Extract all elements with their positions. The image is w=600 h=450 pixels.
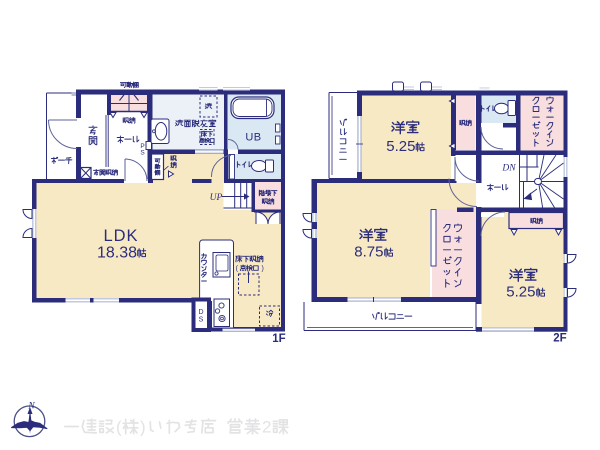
svg-text:): ) [140,417,146,436]
svg-text:5.25: 5.25 [506,284,535,301]
svg-text:UP: UP [210,193,223,203]
svg-text:UB: UB [245,132,261,144]
svg-text:LDK: LDK [103,227,138,245]
svg-text:5.25: 5.25 [386,138,415,155]
svg-text:2F: 2F [553,333,566,345]
svg-text:N: N [27,402,35,412]
svg-text:D: D [198,309,203,316]
svg-text:8.75: 8.75 [354,244,383,261]
svg-text:DN: DN [501,164,516,174]
svg-text:(: ( [116,417,122,436]
svg-text:S: S [140,150,145,157]
svg-text:18.38: 18.38 [97,245,137,262]
svg-text:2: 2 [262,417,271,436]
svg-text:): ) [262,266,264,273]
svg-text:1F: 1F [272,333,285,345]
svg-text:S: S [199,317,204,324]
